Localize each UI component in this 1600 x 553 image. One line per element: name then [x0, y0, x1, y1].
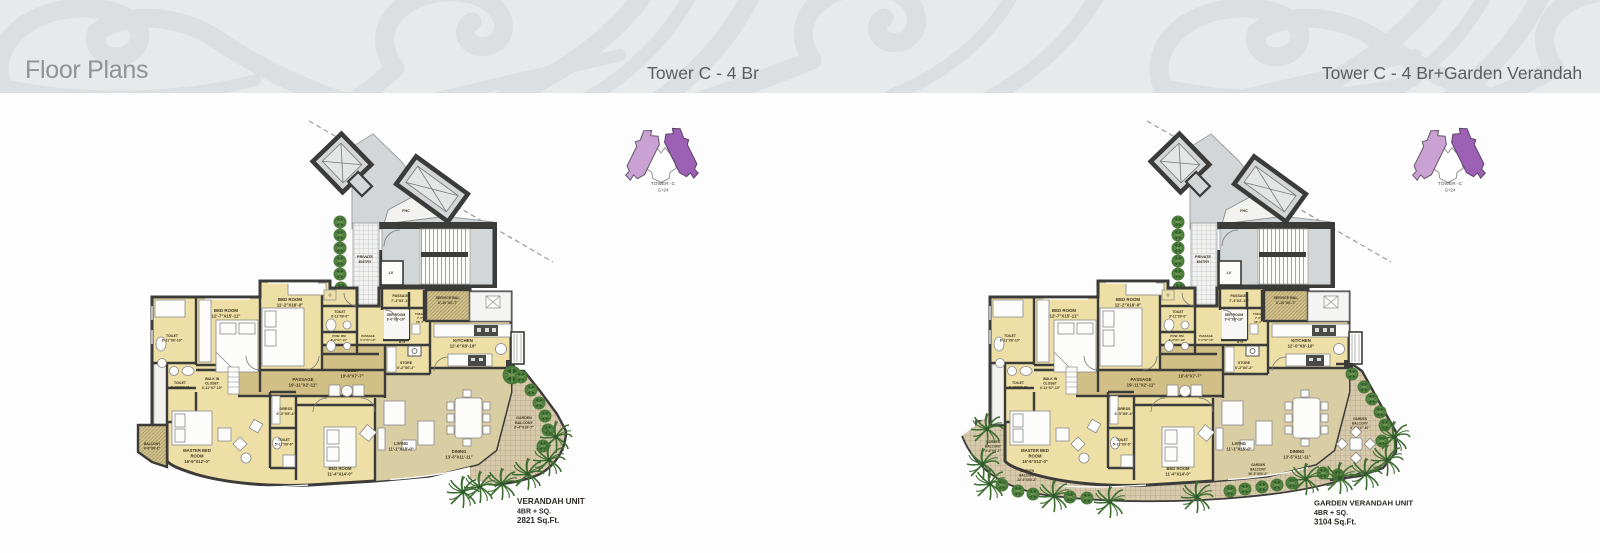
- svg-text:36'-5"X93'-2": 36'-5"X93'-2": [1248, 472, 1268, 476]
- svg-text:2821 Sq.Ft.: 2821 Sq.Ft.: [517, 516, 559, 525]
- svg-text:Tower C - 4 Br+Garden Verandah: Tower C - 4 Br+Garden Verandah: [1322, 63, 1582, 83]
- svg-text:GARDEN VERANDAH UNIT: GARDEN VERANDAH UNIT: [1314, 499, 1413, 508]
- svg-text:BALCONY: BALCONY: [1250, 467, 1267, 471]
- svg-text:TOWER -C: TOWER -C: [1438, 181, 1463, 187]
- svg-text:BALCONY: BALCONY: [1352, 421, 1369, 425]
- svg-text:4BR + SQ.: 4BR + SQ.: [517, 509, 551, 516]
- svg-text:Tower C - 4 Br: Tower C - 4 Br: [647, 63, 759, 83]
- svg-text:4'-6"X9'-2": 4'-6"X9'-2": [144, 447, 161, 451]
- svg-text:Floor Plans: Floor Plans: [25, 56, 148, 84]
- svg-text:BALCONY: BALCONY: [144, 442, 161, 446]
- svg-text:GARDEN: GARDEN: [1353, 417, 1368, 421]
- svg-text:GARDEN: GARDEN: [1251, 463, 1266, 467]
- svg-text:GARDEN: GARDEN: [1020, 469, 1035, 473]
- svg-text:G+24: G+24: [658, 188, 669, 193]
- svg-text:3104 Sq.Ft.: 3104 Sq.Ft.: [1314, 518, 1356, 527]
- svg-text:4BR + SQ.: 4BR + SQ.: [1314, 510, 1348, 517]
- svg-text:GARDEN: GARDEN: [516, 416, 532, 420]
- svg-text:8'-4"X19'-7": 8'-4"X19'-7": [514, 426, 534, 430]
- svg-text:BALCONY: BALCONY: [515, 421, 533, 425]
- svg-text:G+24: G+24: [1445, 188, 1456, 193]
- svg-text:BALCONY: BALCONY: [1019, 473, 1036, 477]
- svg-text:VERANDAH UNIT: VERANDAH UNIT: [517, 497, 585, 506]
- svg-text:22'-5"X93'-2": 22'-5"X93'-2": [1017, 478, 1037, 482]
- svg-text:TOWER -C: TOWER -C: [651, 181, 676, 187]
